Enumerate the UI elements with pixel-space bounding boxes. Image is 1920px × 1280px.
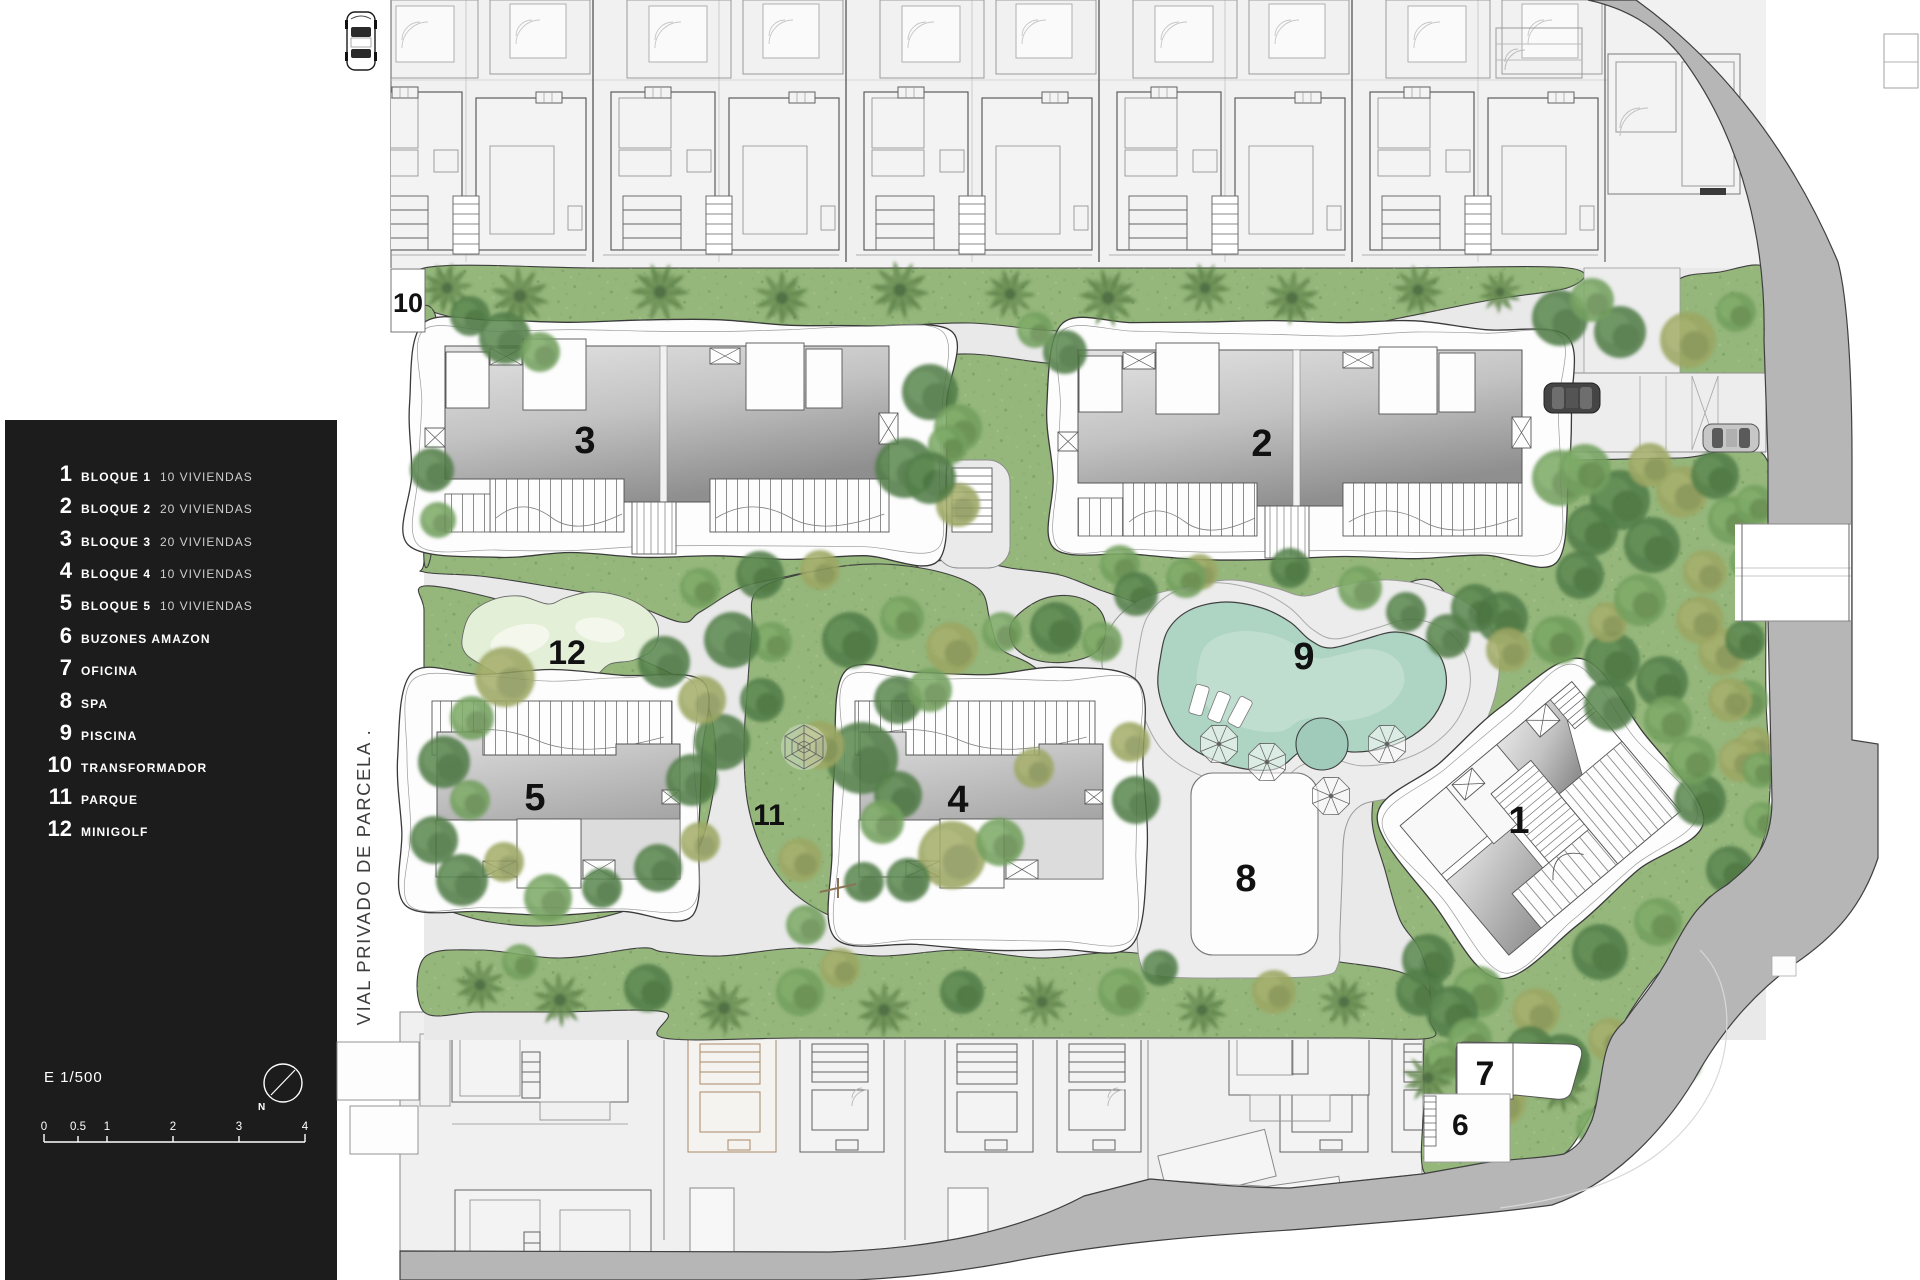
svg-text:3: 3 [574, 420, 595, 462]
svg-text:E 1/500: E 1/500 [44, 1069, 103, 1086]
svg-text:BLOQUE 3: BLOQUE 3 [81, 535, 151, 549]
svg-text:BLOQUE 2: BLOQUE 2 [81, 502, 151, 516]
svg-text:MINIGOLF: MINIGOLF [81, 825, 148, 839]
svg-text:1: 1 [60, 461, 72, 486]
svg-text:N: N [258, 1102, 265, 1113]
svg-text:5: 5 [60, 590, 72, 615]
svg-text:1: 1 [104, 1121, 110, 1133]
svg-text:BLOQUE 4: BLOQUE 4 [81, 567, 151, 581]
svg-text:10 VIVIENDAS: 10 VIVIENDAS [160, 470, 253, 484]
svg-text:SPA: SPA [81, 697, 108, 711]
svg-text:5: 5 [524, 777, 545, 819]
svg-text:6: 6 [1452, 1109, 1469, 1142]
svg-text:4: 4 [60, 558, 73, 583]
svg-text:9: 9 [60, 720, 72, 745]
svg-text:10 VIVIENDAS: 10 VIVIENDAS [160, 599, 253, 613]
svg-text:BLOQUE 5: BLOQUE 5 [81, 599, 151, 613]
svg-text:12: 12 [548, 634, 586, 672]
svg-text:2: 2 [60, 493, 72, 518]
svg-text:1: 1 [1508, 800, 1529, 842]
svg-text:BUZONES AMAZON: BUZONES AMAZON [81, 632, 211, 646]
svg-text:20 VIVIENDAS: 20 VIVIENDAS [160, 535, 253, 549]
svg-text:9: 9 [1293, 636, 1314, 678]
svg-text:8: 8 [60, 688, 72, 713]
svg-text:PARQUE: PARQUE [81, 793, 138, 807]
svg-text:OFICINA: OFICINA [81, 664, 138, 678]
svg-text:7: 7 [1476, 1055, 1495, 1093]
svg-text:3: 3 [236, 1121, 242, 1133]
svg-text:20 VIVIENDAS: 20 VIVIENDAS [160, 502, 253, 516]
svg-text:10 VIVIENDAS: 10 VIVIENDAS [160, 567, 253, 581]
svg-text:11: 11 [753, 799, 785, 832]
svg-text:12: 12 [48, 816, 72, 841]
svg-text:11: 11 [49, 784, 72, 809]
svg-text:VIAL PRIVADO DE PARCELA .: VIAL PRIVADO DE PARCELA . [353, 729, 374, 1026]
svg-text:2: 2 [170, 1121, 176, 1133]
svg-text:8: 8 [1235, 858, 1256, 900]
svg-text:BLOQUE 1: BLOQUE 1 [81, 470, 151, 484]
svg-text:0: 0 [41, 1121, 47, 1133]
svg-text:2: 2 [1251, 423, 1272, 465]
svg-text:6: 6 [60, 623, 72, 648]
svg-text:0.5: 0.5 [70, 1121, 86, 1133]
svg-text:10: 10 [48, 752, 72, 777]
svg-text:3: 3 [60, 526, 72, 551]
svg-text:TRANSFORMADOR: TRANSFORMADOR [81, 761, 207, 775]
svg-text:4: 4 [947, 779, 968, 821]
svg-text:7: 7 [60, 655, 72, 680]
svg-text:4: 4 [302, 1121, 309, 1133]
svg-text:PISCINA: PISCINA [81, 729, 137, 743]
svg-text:10: 10 [393, 288, 423, 318]
